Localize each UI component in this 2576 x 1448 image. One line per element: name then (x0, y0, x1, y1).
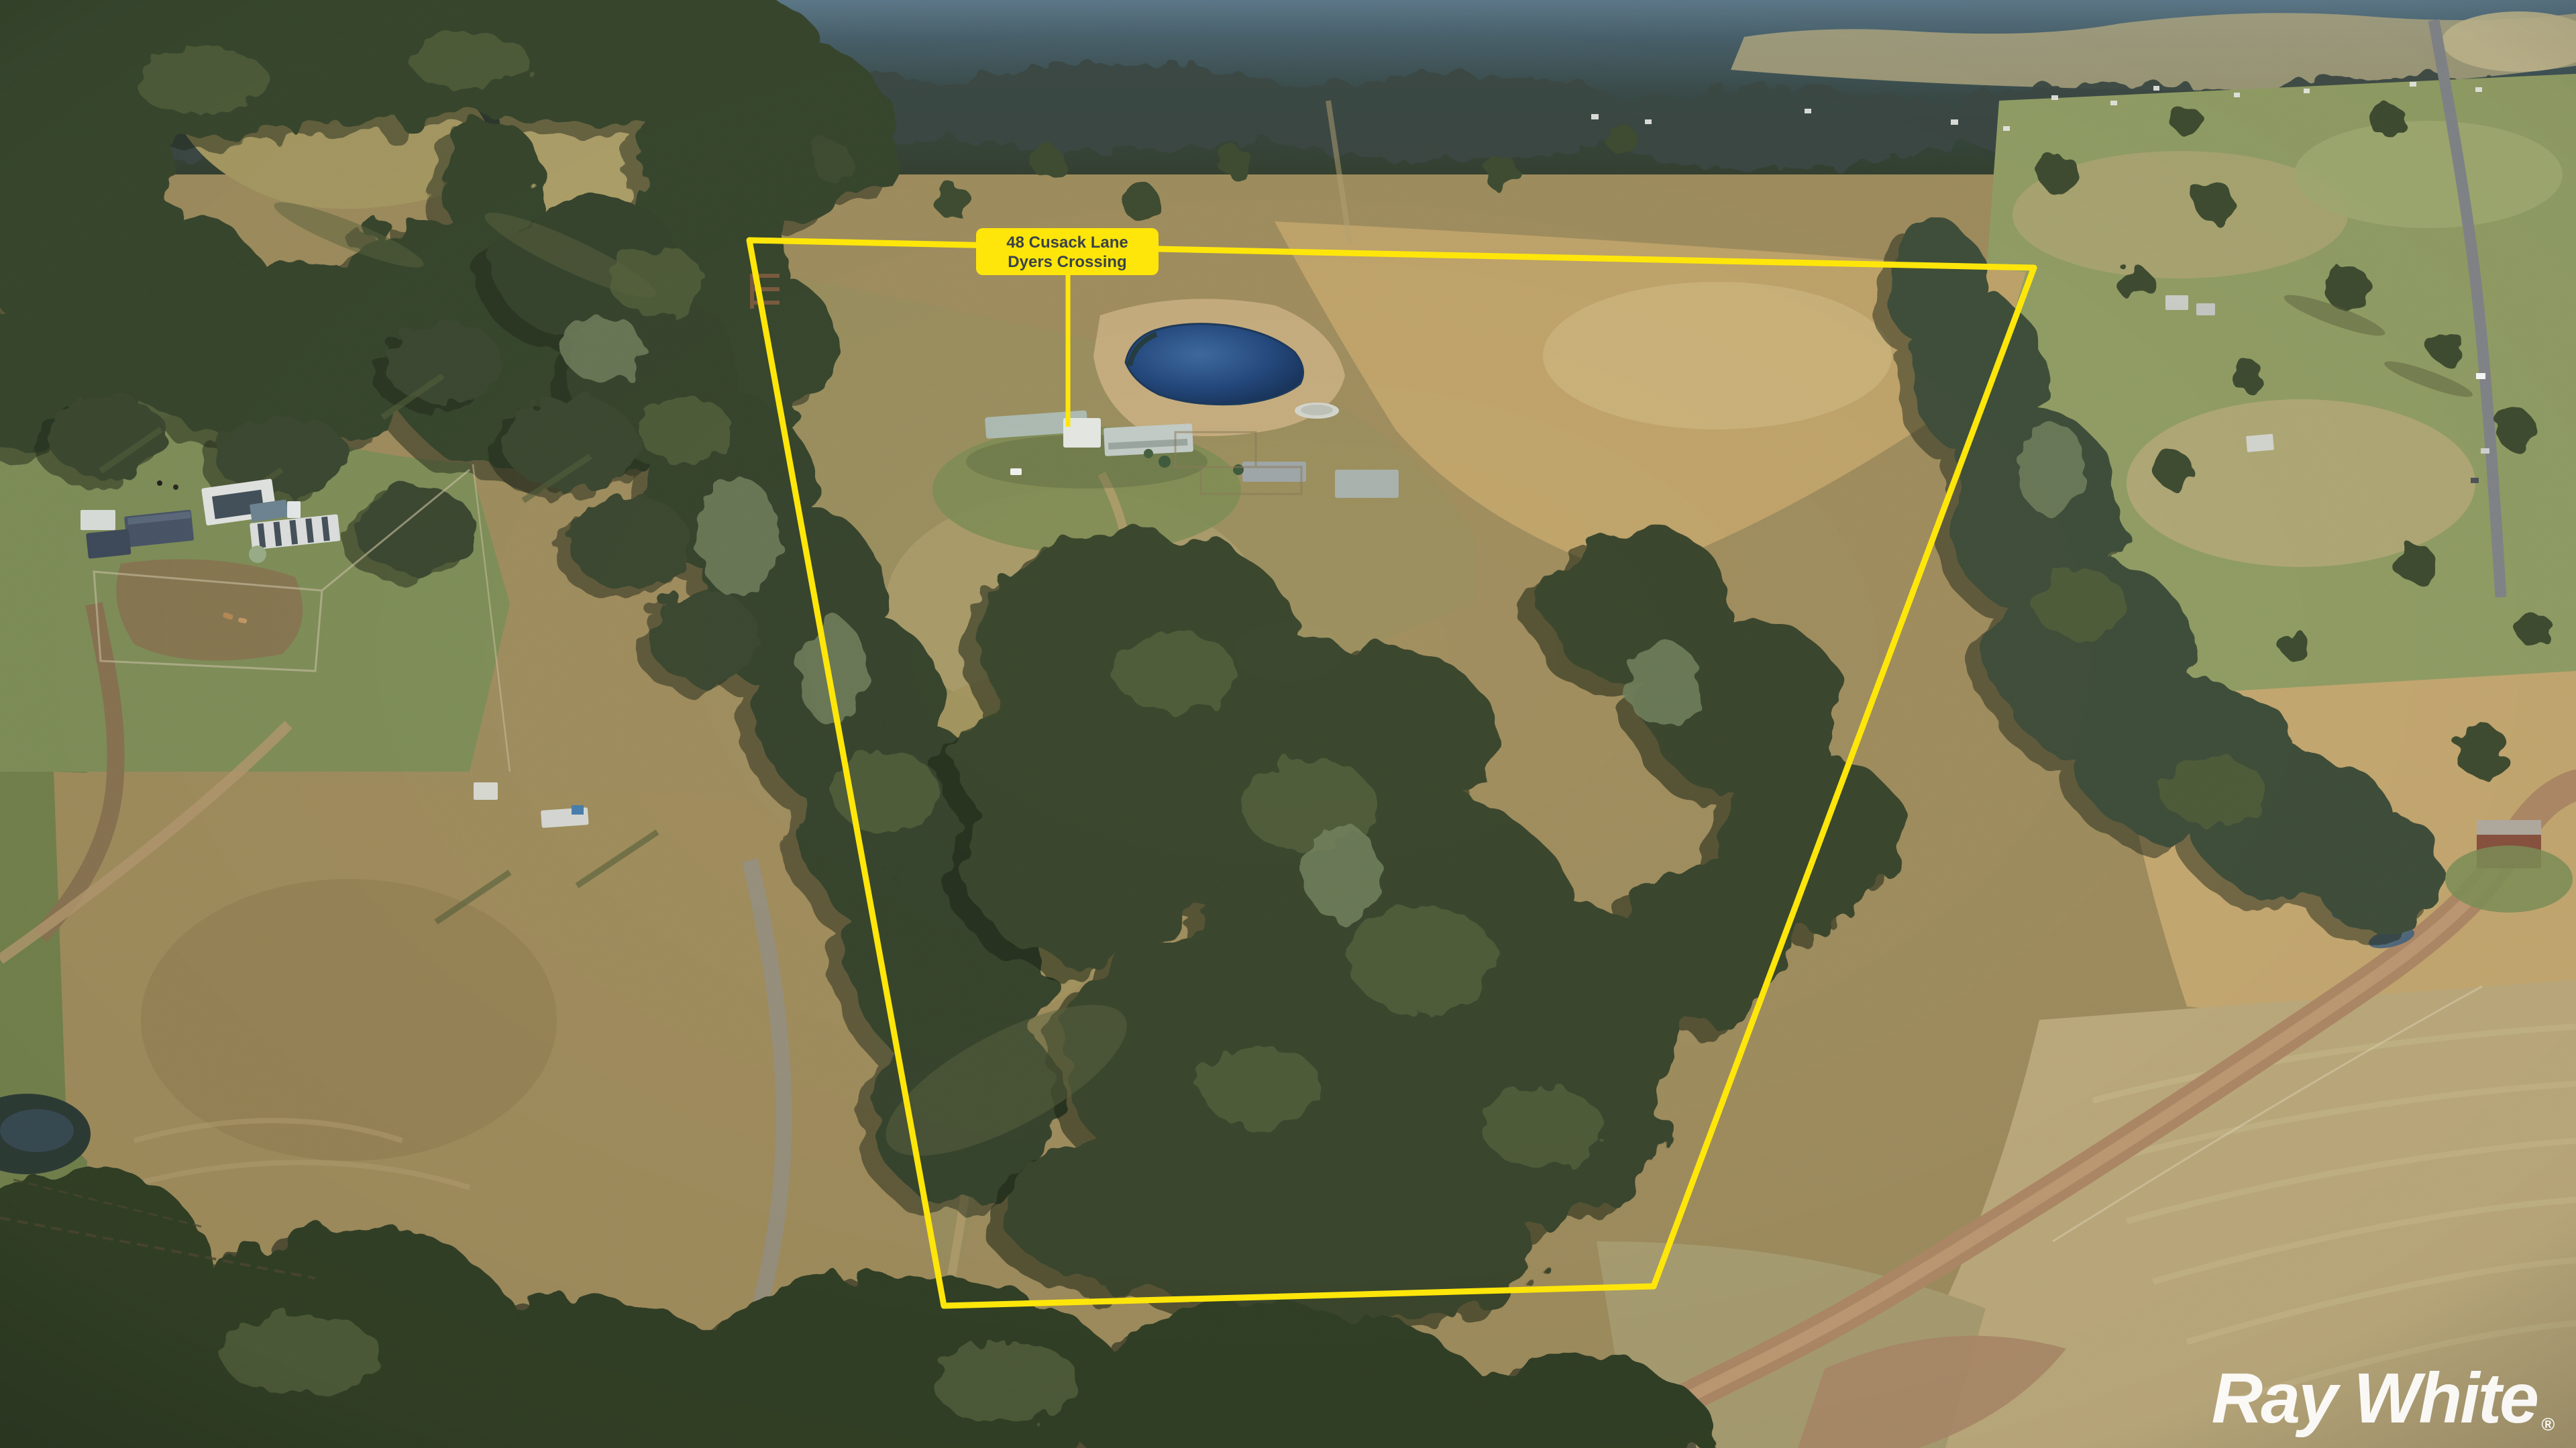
vignette (0, 0, 2576, 1448)
aerial-photo-canvas: 48 Cusack Lane Dyers Crossing Ray White … (0, 0, 2576, 1448)
watermark-brand: Ray White (2212, 1359, 2537, 1438)
aerial-photo: 48 Cusack Lane Dyers Crossing Ray White … (0, 0, 2576, 1448)
address-line-2: Dyers Crossing (1008, 253, 1126, 271)
address-label: 48 Cusack Lane Dyers Crossing (976, 228, 1159, 275)
address-line-1: 48 Cusack Lane (1006, 234, 1128, 252)
registered-trademark-icon: ® (2541, 1414, 2555, 1435)
landscape (0, 0, 2576, 1448)
ray-white-watermark: Ray White ® (2212, 1359, 2555, 1438)
